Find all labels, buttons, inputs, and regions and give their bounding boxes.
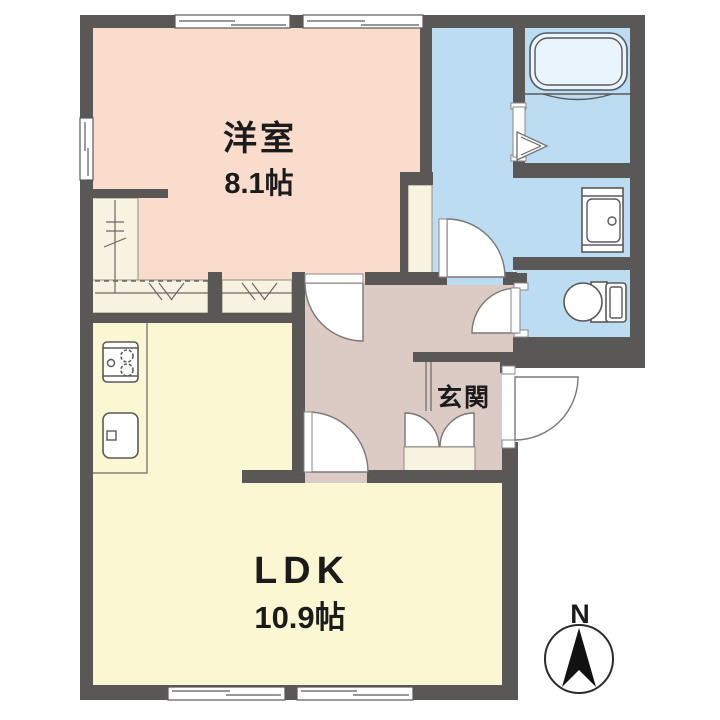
storage-space xyxy=(408,185,432,273)
wall-bath-bottom xyxy=(513,163,630,178)
wall-closet-bottom xyxy=(80,313,305,323)
toilet-icon xyxy=(564,282,626,322)
window-pier-bottom xyxy=(285,685,297,700)
wall-storage-top xyxy=(400,172,433,185)
window-top-2 xyxy=(303,15,423,28)
stove-icon xyxy=(103,342,138,382)
wall-ldk-entrance xyxy=(367,470,510,483)
closet-right xyxy=(222,280,292,313)
window-left xyxy=(80,118,93,180)
wall-storage-left xyxy=(400,185,408,273)
washbasin-icon xyxy=(582,188,623,252)
west-room-area: 8.1帖 xyxy=(224,167,293,200)
wall-closet-pier xyxy=(208,272,222,313)
west-room-label: 洋室 xyxy=(223,119,297,158)
ldk-area: 10.9帖 xyxy=(254,600,345,635)
wall-closet-stub xyxy=(92,189,168,198)
entrance-label: 玄関 xyxy=(437,383,491,412)
wall-toilet-top xyxy=(513,257,645,270)
compass: N xyxy=(545,599,613,693)
wall-toilet-bottom xyxy=(513,337,645,368)
window-pier-top xyxy=(290,15,303,28)
wall-outer-right-upper xyxy=(630,15,645,368)
entrance-door xyxy=(502,366,578,448)
window-bottom-2 xyxy=(297,687,413,700)
wall-hall-left xyxy=(292,272,305,472)
window-bottom-1 xyxy=(168,687,285,700)
wall-hall-top xyxy=(365,272,447,285)
bathtub-icon xyxy=(525,33,630,100)
floor-plan: 洋室 8.1帖 LDK 10.9帖 玄関 N xyxy=(0,0,720,720)
window-top-1 xyxy=(175,15,290,28)
wall-westroom-washroom xyxy=(420,15,432,185)
kitchen-sink-icon xyxy=(103,413,138,458)
ldk-label: LDK xyxy=(254,550,350,592)
wall-hall-entrance-stub xyxy=(413,352,500,362)
wall-bath-left-upper xyxy=(513,28,525,107)
floor-plan-page: 洋室 8.1帖 LDK 10.9帖 玄関 N xyxy=(0,0,720,720)
